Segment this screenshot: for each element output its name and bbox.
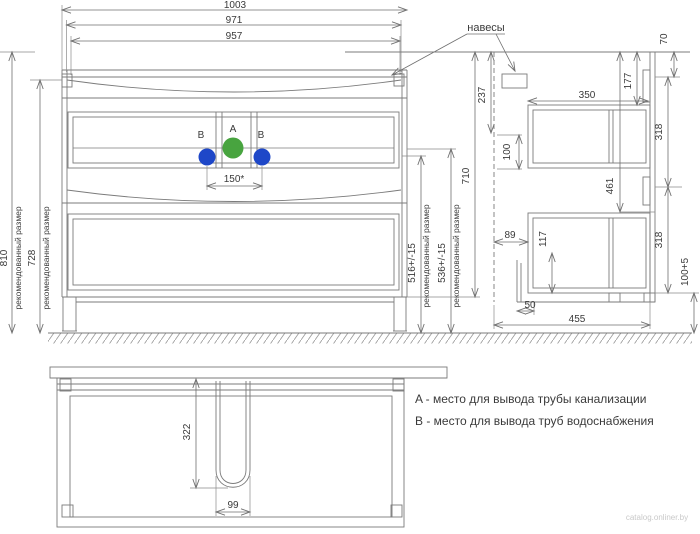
dim-total-depth: 455 <box>569 314 586 325</box>
pipe-cutout-outer <box>216 381 250 487</box>
hinges-callout <box>392 34 515 75</box>
ground-hatch <box>48 333 692 344</box>
vanity-drawing-canvas: 1003 971 957 810 рекомендованный размер … <box>0 0 700 534</box>
dim-width-mid: 971 <box>226 15 243 26</box>
front-view-dimensions <box>0 5 407 333</box>
dim-height-cabinet-note: рекомендованный размер <box>41 206 51 310</box>
dim-cutout-width: 99 <box>227 500 239 511</box>
drawing-text: 1003 971 957 810 рекомендованный размер … <box>0 0 691 522</box>
dim-rail-spacing-lower: 318 <box>654 231 665 248</box>
dim-cutout-depth: 322 <box>182 423 193 440</box>
dim-width-inner: 957 <box>226 31 243 42</box>
installation-dimensions <box>402 52 480 333</box>
dim-total-height: 710 <box>461 167 472 184</box>
side-view <box>345 52 690 302</box>
mounting-rail-lower <box>643 177 650 205</box>
dim-water-supply-height: 516+/-15 <box>407 243 418 283</box>
dim-top-section: 177 <box>623 72 634 89</box>
dim-front-recess: 89 <box>504 230 516 241</box>
dim-drawer-depth: 350 <box>579 90 596 101</box>
pipe-b-left-label: B <box>198 130 205 141</box>
dim-pipe-spacing: 150* <box>224 174 245 185</box>
dim-bracket-offset: 237 <box>477 86 488 103</box>
dim-drawer-height: 117 <box>538 231 549 247</box>
dim-leg-height: 100+5 <box>680 258 691 287</box>
dim-height-recommended: 810 <box>0 249 10 266</box>
technical-drawing-page: 1003 971 957 810 рекомендованный размер … <box>0 0 700 534</box>
bottom-view <box>50 367 447 527</box>
pipe-b-right-label: B <box>258 130 265 141</box>
dim-drain-note: рекомендованный размер <box>451 204 461 308</box>
sink-front-curve <box>67 80 401 92</box>
wall-hatch <box>50 367 447 378</box>
pipe-outlet-a <box>223 138 244 159</box>
drawer-front-curve <box>67 190 401 202</box>
pipe-outlet-b-right <box>254 149 271 166</box>
dim-bracket-zone: 100 <box>502 143 513 160</box>
pipe-outlet-b-left <box>199 149 216 166</box>
dim-water-supply-note: рекомендованный размер <box>421 204 431 308</box>
legend-line-a: A - место для вывода трубы канализации <box>415 392 646 406</box>
dim-height-cabinet: 728 <box>27 249 38 266</box>
watermark: catalog.onliner.by <box>626 513 688 522</box>
hinges-callout-label: навесы <box>467 22 505 34</box>
dim-width-total: 1003 <box>224 0 247 11</box>
wall-bracket <box>502 74 527 88</box>
mounting-rail-upper <box>643 70 650 102</box>
dim-top-gap: 70 <box>659 33 670 45</box>
dim-height-recommended-note: рекомендованный размер <box>13 206 23 310</box>
dim-leg-setback: 50 <box>524 300 536 311</box>
dim-rail-spacing-upper: 318 <box>654 123 665 140</box>
pipe-a-label: A <box>230 124 237 135</box>
front-view <box>62 70 407 331</box>
dim-drain-height: 536+/-15 <box>437 243 448 283</box>
dim-siphon-clearance: 461 <box>605 177 616 194</box>
legend-line-b: B - место для вывода труб водоснабжения <box>415 414 654 428</box>
pipe-outlets <box>199 138 271 166</box>
